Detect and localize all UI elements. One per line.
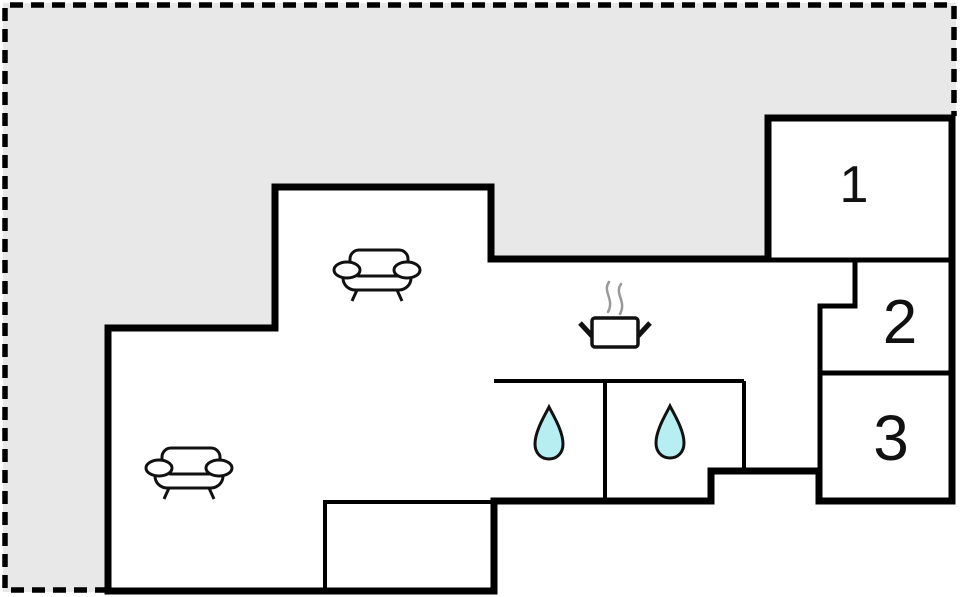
floor-plan: 1 2 3 bbox=[0, 0, 960, 597]
room-1-label: 1 bbox=[840, 156, 869, 214]
room-3-label: 3 bbox=[873, 402, 909, 474]
room-2-label: 2 bbox=[883, 288, 917, 357]
floor-plan-canvas: 1 2 3 bbox=[0, 0, 960, 597]
